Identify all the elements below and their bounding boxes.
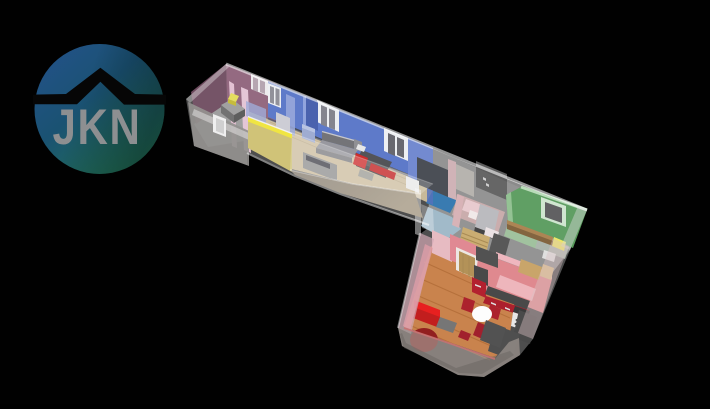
- svg-text:JKN: JKN: [52, 99, 141, 155]
